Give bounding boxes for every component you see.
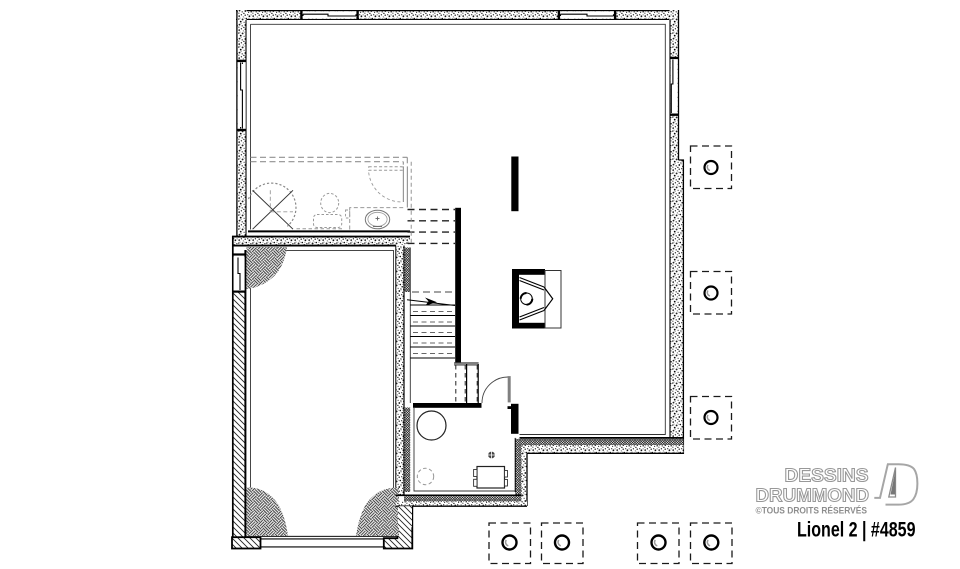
svg-text:DESSINS: DESSINS xyxy=(785,464,869,485)
svg-text:©TOUS DROITS RÉSERVÉS: ©TOUS DROITS RÉSERVÉS xyxy=(756,504,868,515)
svg-text:Lionel 2 | #4859: Lionel 2 | #4859 xyxy=(797,518,916,541)
svg-text:DRUMMOND: DRUMMOND xyxy=(756,484,870,505)
